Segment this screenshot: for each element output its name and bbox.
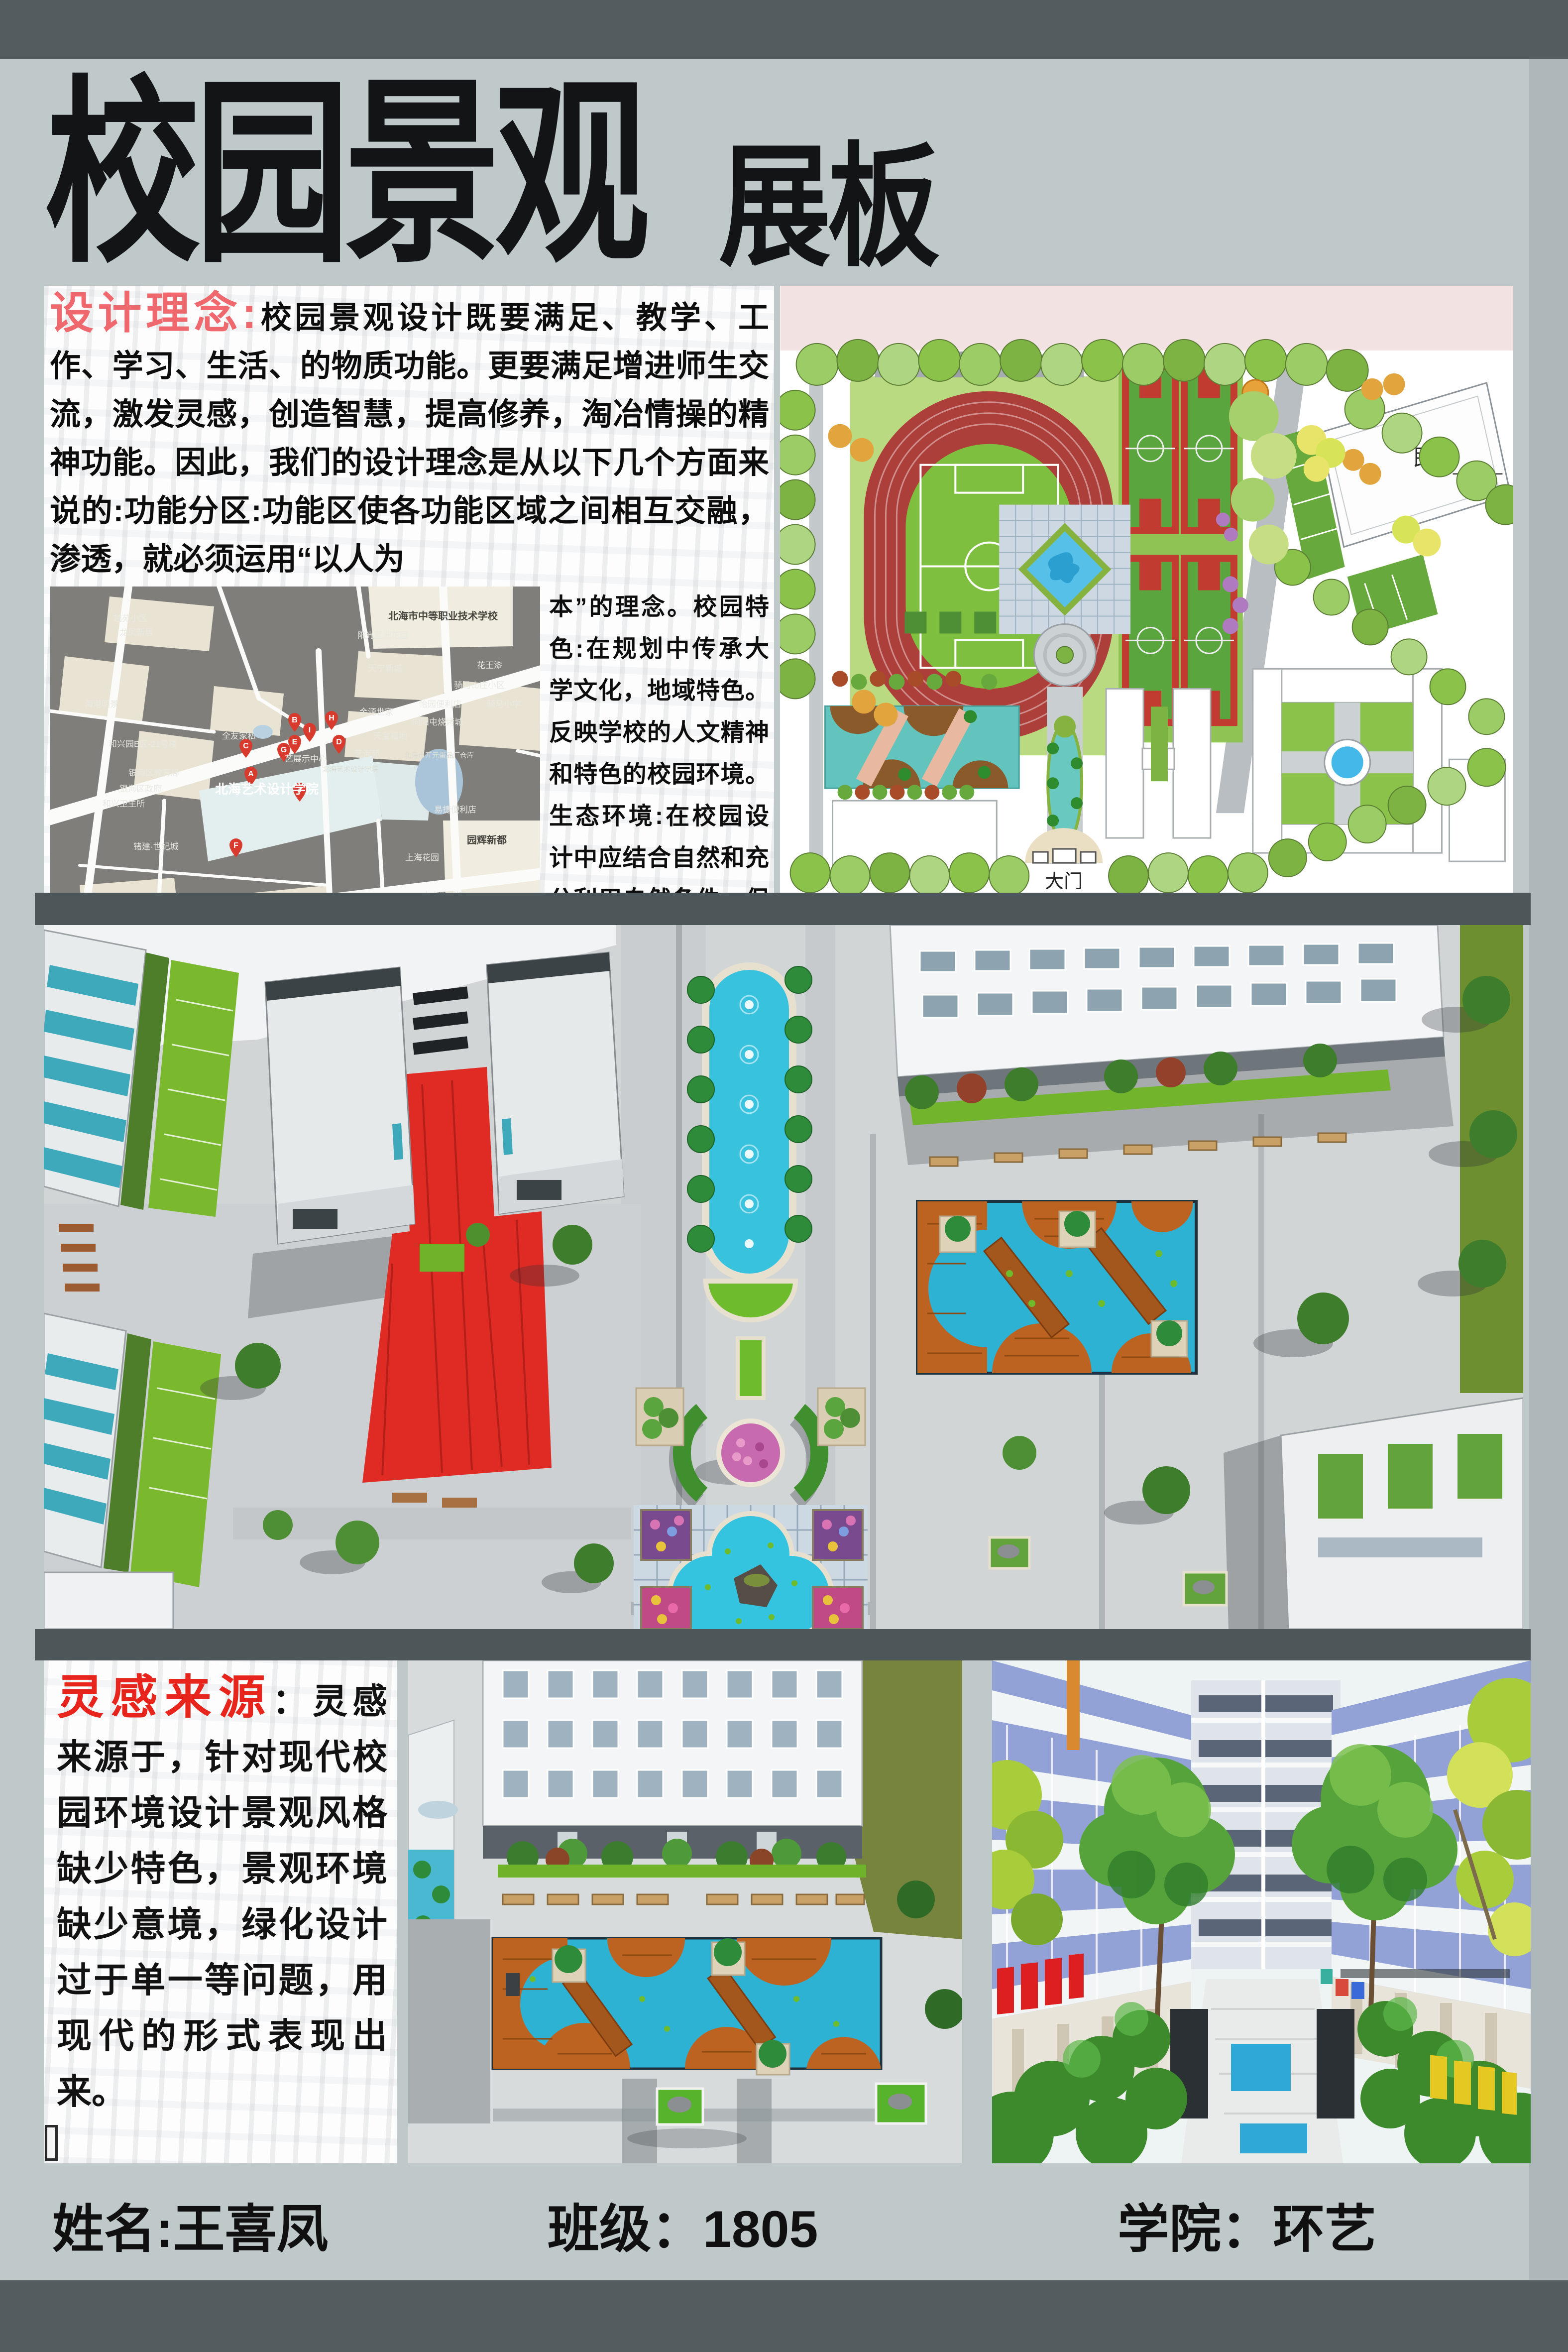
plan-circular-plaza: [1034, 624, 1096, 686]
mid-building: [483, 1660, 862, 1859]
aerial-render: [44, 925, 1523, 1629]
map-pin-g: G: [281, 746, 287, 754]
map-label: 艺海苑: [354, 749, 380, 759]
map-label: 海港明景: [85, 700, 118, 709]
plan-pink-band: [781, 286, 1513, 351]
bottom-border-band: [0, 2280, 1568, 2352]
map-pin-i: I: [309, 726, 311, 734]
top-border-band: [0, 0, 1568, 59]
render-left-building-top: [44, 930, 239, 1217]
render-deck-pond: [917, 1201, 1196, 1373]
map-label: 天宁新城: [368, 664, 402, 673]
design-concept-block: 设计理念:校园景观设计既要满足、教学、工作、学习、生活、的物质功能。更要满足增进…: [44, 286, 774, 893]
page-title-main: 校园景观: [45, 71, 644, 278]
map-label: 艺展示中心: [285, 754, 327, 764]
design-concept-heading-colon: :: [242, 288, 257, 338]
plaza-perspective-render: [408, 1660, 962, 2163]
campus-master-plan: 民宅: [780, 286, 1513, 893]
map-label: 银海区政府: [119, 784, 162, 794]
map-label: 怡园便利店: [419, 700, 461, 709]
map-label: 骑马山庄小区: [454, 681, 505, 690]
footer: 姓名:王喜凤 班级：1805 学院：环艺: [0, 2187, 1568, 2256]
footer-college: 学院：环艺: [1118, 2187, 1376, 2262]
map-label: 锗建·世纪城: [133, 842, 179, 851]
map-label: 天宝福地: [373, 731, 407, 741]
map-pin-f: F: [233, 841, 238, 850]
render-clover-plaza: [634, 1505, 868, 1629]
courtyard-photo: [992, 1660, 1531, 2163]
map-pin-h: H: [329, 714, 335, 722]
inspiration-paragraph: 灵感来源：灵感来源于，针对现代校园环境设计景观风格缺少特色，景观环境缺少意境，绿…: [57, 1669, 387, 2119]
map-label: 园辉新都: [467, 834, 507, 846]
map-label: 上海花园: [405, 853, 439, 862]
map-pin-d: D: [336, 738, 342, 746]
map-label: 花王漆: [477, 661, 502, 670]
concept-map-row: A B C D E F G H I J 北海市中等职业技术学校 阳光蓝洲花园 天…: [50, 587, 769, 893]
footer-name: 姓名:王喜凤: [52, 2187, 329, 2262]
map-label: 全友家私: [222, 731, 256, 741]
map-label: 向阳屯烧烤城: [412, 717, 463, 727]
inspiration-body-text: 灵感来源于，针对现代校园环境设计景观风格缺少特色，景观环境缺少意境，绿化设计过于…: [57, 1682, 387, 2111]
page-title: 校园景观 展板: [45, 71, 978, 278]
campus-landscape-poster: 校园景观 展板 设计理念:校园景观设计既要满足、教学、工作、学习、生活、的物质功…: [0, 0, 1568, 2352]
location-map: A B C D E F G H I J 北海市中等职业技术学校 阳光蓝洲花园 天…: [50, 587, 540, 893]
render-left-building-bottom: [44, 1313, 221, 1629]
map-label: 易捷便利店: [434, 805, 476, 815]
render-right-building: [890, 925, 1454, 1166]
plan-checker-plaza: [999, 505, 1130, 634]
map-pin-e: E: [292, 738, 298, 746]
page-title-suffix: 展板: [719, 140, 936, 274]
inspiration-heading: 灵感来源: [57, 1671, 272, 1723]
inspiration-heading-colon: ：: [272, 1682, 312, 1721]
map-label: 阳光蓝洲花园: [357, 631, 408, 640]
plan-teal-pond: [825, 706, 1019, 788]
map-label: 金源世家: [359, 707, 393, 717]
map-pin-c: C: [243, 742, 249, 750]
map-label: 北海市开元蛋品厂仓库: [404, 751, 474, 759]
map-label: 和兴卫生所: [103, 799, 145, 809]
map-label: 银海区教育局: [128, 768, 179, 778]
map-label: 北海市中等职业技术学校: [388, 610, 498, 622]
map-pin-b: B: [292, 716, 298, 724]
plan-gate-label: 大门: [1045, 871, 1083, 892]
map-label: 越苑小区: [113, 614, 147, 623]
map-label: 龙凤新居: [119, 628, 153, 637]
map-label: 北海艺术设计学院: [323, 765, 378, 773]
inspiration-block: 灵感来源：灵感来源于，针对现代校园环境设计景观风格缺少特色，景观环境缺少意境，绿…: [44, 1660, 397, 2163]
map-label: 骑马小学: [487, 700, 521, 709]
separator-band-1: [35, 893, 1531, 925]
design-concept-heading: 设计理念: [50, 288, 242, 338]
design-concept-paragraph: 设计理念:校园景观设计既要满足、教学、工作、学习、生活、的物质功能。更要满足增进…: [50, 289, 769, 584]
design-concept-intro-text: 校园景观设计既要满足、教学、工作、学习、生活、的物质功能。更要满足增进师生交流，…: [50, 301, 769, 577]
map-label: 和兴园B区-21号楼: [109, 739, 177, 749]
footer-class: 班级：1805: [548, 2187, 818, 2262]
design-concept-side-text: 本”的理念。校园特色:在规划中传承大学文化，地域特色。反映学校的人文精神和特色的…: [549, 587, 769, 893]
map-label: 北海艺术设计学院: [215, 782, 319, 797]
separator-band-2: [35, 1629, 1531, 1660]
page-corner-glyph: [45, 2125, 58, 2161]
map-pin-a: A: [248, 770, 254, 778]
right-margin-shade: [1529, 59, 1568, 2280]
